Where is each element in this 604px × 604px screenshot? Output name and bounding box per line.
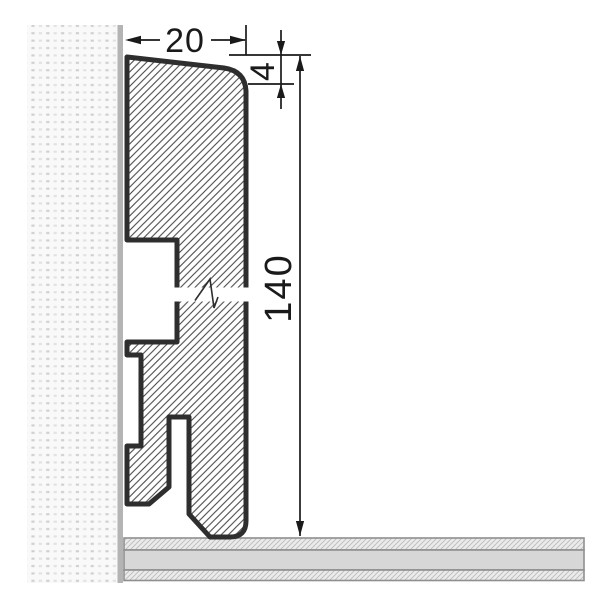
floor-top-layer bbox=[124, 538, 584, 550]
height-dimension: 140 bbox=[258, 56, 304, 536]
arrow-down-icon bbox=[277, 41, 285, 55]
bevel-dimension: 4 bbox=[244, 30, 294, 109]
floor-section bbox=[124, 538, 584, 581]
technical-drawing-canvas: 20 4 140 bbox=[0, 0, 604, 604]
arrow-up-icon bbox=[277, 84, 285, 98]
arrow-down-icon bbox=[296, 521, 304, 536]
skirting-profile-drawing: 20 4 140 bbox=[0, 0, 604, 604]
wall-section bbox=[27, 25, 118, 583]
arrow-left-icon bbox=[125, 36, 141, 44]
floor-bottom-layer bbox=[124, 570, 584, 581]
break-band bbox=[163, 288, 253, 302]
floor-middle-layer bbox=[124, 550, 584, 570]
width-dimension: 20 bbox=[125, 22, 246, 60]
height-dimension-label: 140 bbox=[258, 253, 300, 322]
wall-surface-line bbox=[118, 25, 124, 583]
bevel-dimension-label: 4 bbox=[244, 61, 282, 81]
arrow-up-icon bbox=[296, 56, 304, 71]
width-dimension-label: 20 bbox=[165, 22, 205, 60]
arrow-right-icon bbox=[230, 36, 246, 44]
